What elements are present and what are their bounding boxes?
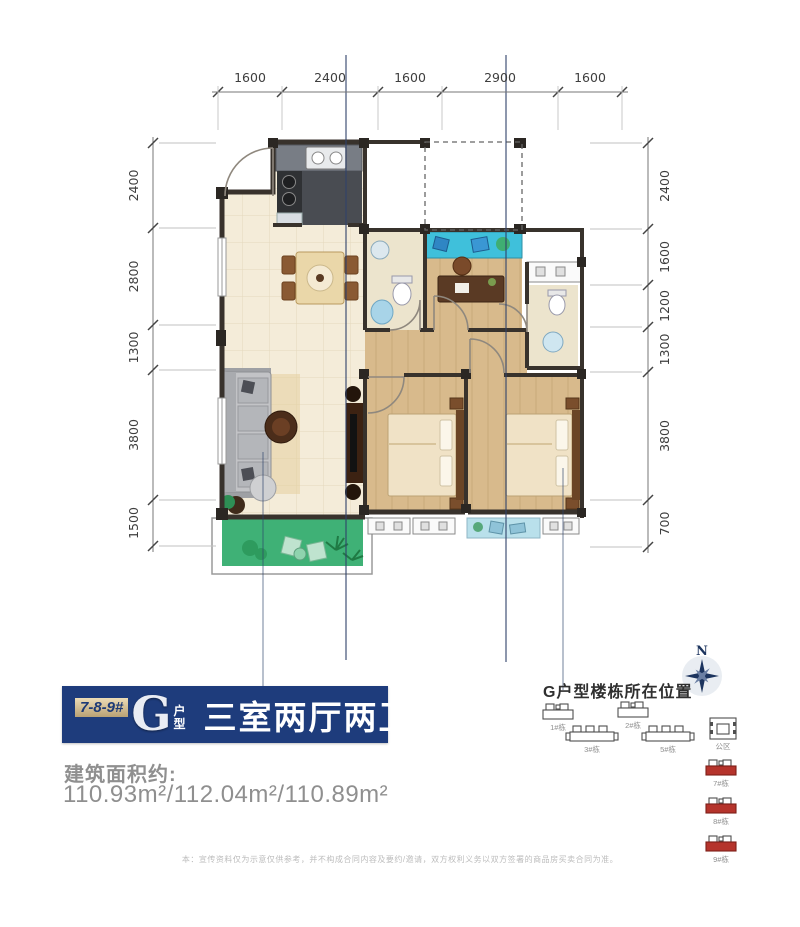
- dimension-label: 700: [657, 512, 672, 536]
- dimension-label: 1300: [657, 334, 672, 366]
- sitemap-building-label: 公区: [716, 742, 731, 751]
- bedroom-1-furniture: [388, 398, 464, 509]
- dimension-chain-top: 16002400160029001600: [212, 70, 628, 130]
- sitemap-building-label: 5#栋: [660, 744, 676, 754]
- sitemap-building-label: 1#栋: [550, 722, 566, 732]
- sitemap-building-label: 7#栋: [713, 778, 729, 788]
- sitemap-building-icon: 9#栋: [706, 836, 736, 864]
- desk-chair-icon: [453, 257, 471, 275]
- entrance-door-icon: [225, 148, 273, 196]
- dimension-label: 3800: [126, 419, 141, 451]
- dimension-chain-right: 24001600120013003800700: [590, 137, 672, 553]
- building-numbers-badge: 7-8-9#: [75, 698, 128, 717]
- dimension-label: 1500: [126, 507, 141, 539]
- bedroom-2-furniture: [506, 398, 580, 509]
- dimension-label: 2900: [484, 70, 516, 85]
- unit-word: 户 型: [174, 705, 186, 731]
- stove-icon: [283, 176, 296, 189]
- unit-banner: 7-8-9# G 户 型 三室两厅两卫: [62, 686, 388, 743]
- dimension-label: 1600: [394, 70, 426, 85]
- dimension-chain-left: 24002800130038001500: [126, 137, 216, 552]
- sitemap-title: G户型楼栋所在位置: [543, 678, 692, 702]
- corridor-floor: [365, 330, 527, 375]
- floor-plan: [212, 138, 586, 574]
- sitemap-building-icon: 公区: [710, 718, 736, 751]
- sitemap-building-icon: 2#栋: [618, 702, 648, 730]
- toilet-icon: [393, 283, 411, 305]
- dimension-label: 2400: [126, 170, 141, 202]
- compass-north-label: N: [696, 644, 708, 659]
- dimension-label: 1300: [126, 332, 141, 364]
- disclaimer-text: 本：宣传资料仅为示意仅供参考，并不构成合同内容及要约/邀请，双方权利义务以双方签…: [182, 854, 618, 865]
- dimension-label: 2400: [314, 70, 346, 85]
- dimension-label: 1600: [234, 70, 266, 85]
- sink-icon: [371, 241, 389, 259]
- sitemap-building-icon: 3#栋: [566, 726, 618, 754]
- sitemap-buildings: 1#栋2#栋3#栋5#栋公区7#栋8#栋9#栋: [543, 702, 736, 864]
- floorplan-page: 1600240016002900160024002800130038001500…: [0, 0, 800, 927]
- void-area-dashed: [425, 142, 522, 230]
- layout-title: 三室两厅两卫: [204, 691, 414, 739]
- sitemap-building-icon: 7#栋: [706, 760, 736, 788]
- plant-icon: [496, 237, 510, 251]
- sitemap-building-label: 2#栋: [625, 720, 641, 730]
- dimension-label: 1600: [574, 70, 606, 85]
- sink-icon: [312, 152, 324, 164]
- sink-icon: [543, 332, 563, 352]
- dimension-label: 3800: [657, 420, 672, 452]
- dimension-label: 2400: [657, 170, 672, 202]
- wash-basin-icon: [371, 300, 393, 324]
- sitemap-building-icon: 5#栋: [642, 726, 694, 754]
- area-values: 110.93m²/112.04m²/110.89m²: [63, 781, 388, 809]
- kitchen-counters: [276, 145, 362, 225]
- sitemap-building-icon: 8#栋: [706, 798, 736, 826]
- dimension-label: 1600: [657, 241, 672, 273]
- sitemap-building-label: 3#栋: [584, 744, 600, 754]
- sitemap-building-label: 9#栋: [713, 854, 729, 864]
- building-numbers-label: 7-8-9#: [80, 699, 123, 716]
- dimension-label: 1200: [657, 290, 672, 322]
- dimension-label: 2800: [126, 261, 141, 293]
- sitemap-building-label: 8#栋: [713, 816, 729, 826]
- toilet-icon: [549, 295, 565, 315]
- tv-cabinet-icon: [345, 386, 363, 500]
- sitemap-building-icon: 1#栋: [543, 704, 573, 732]
- unit-letter: G: [131, 690, 171, 740]
